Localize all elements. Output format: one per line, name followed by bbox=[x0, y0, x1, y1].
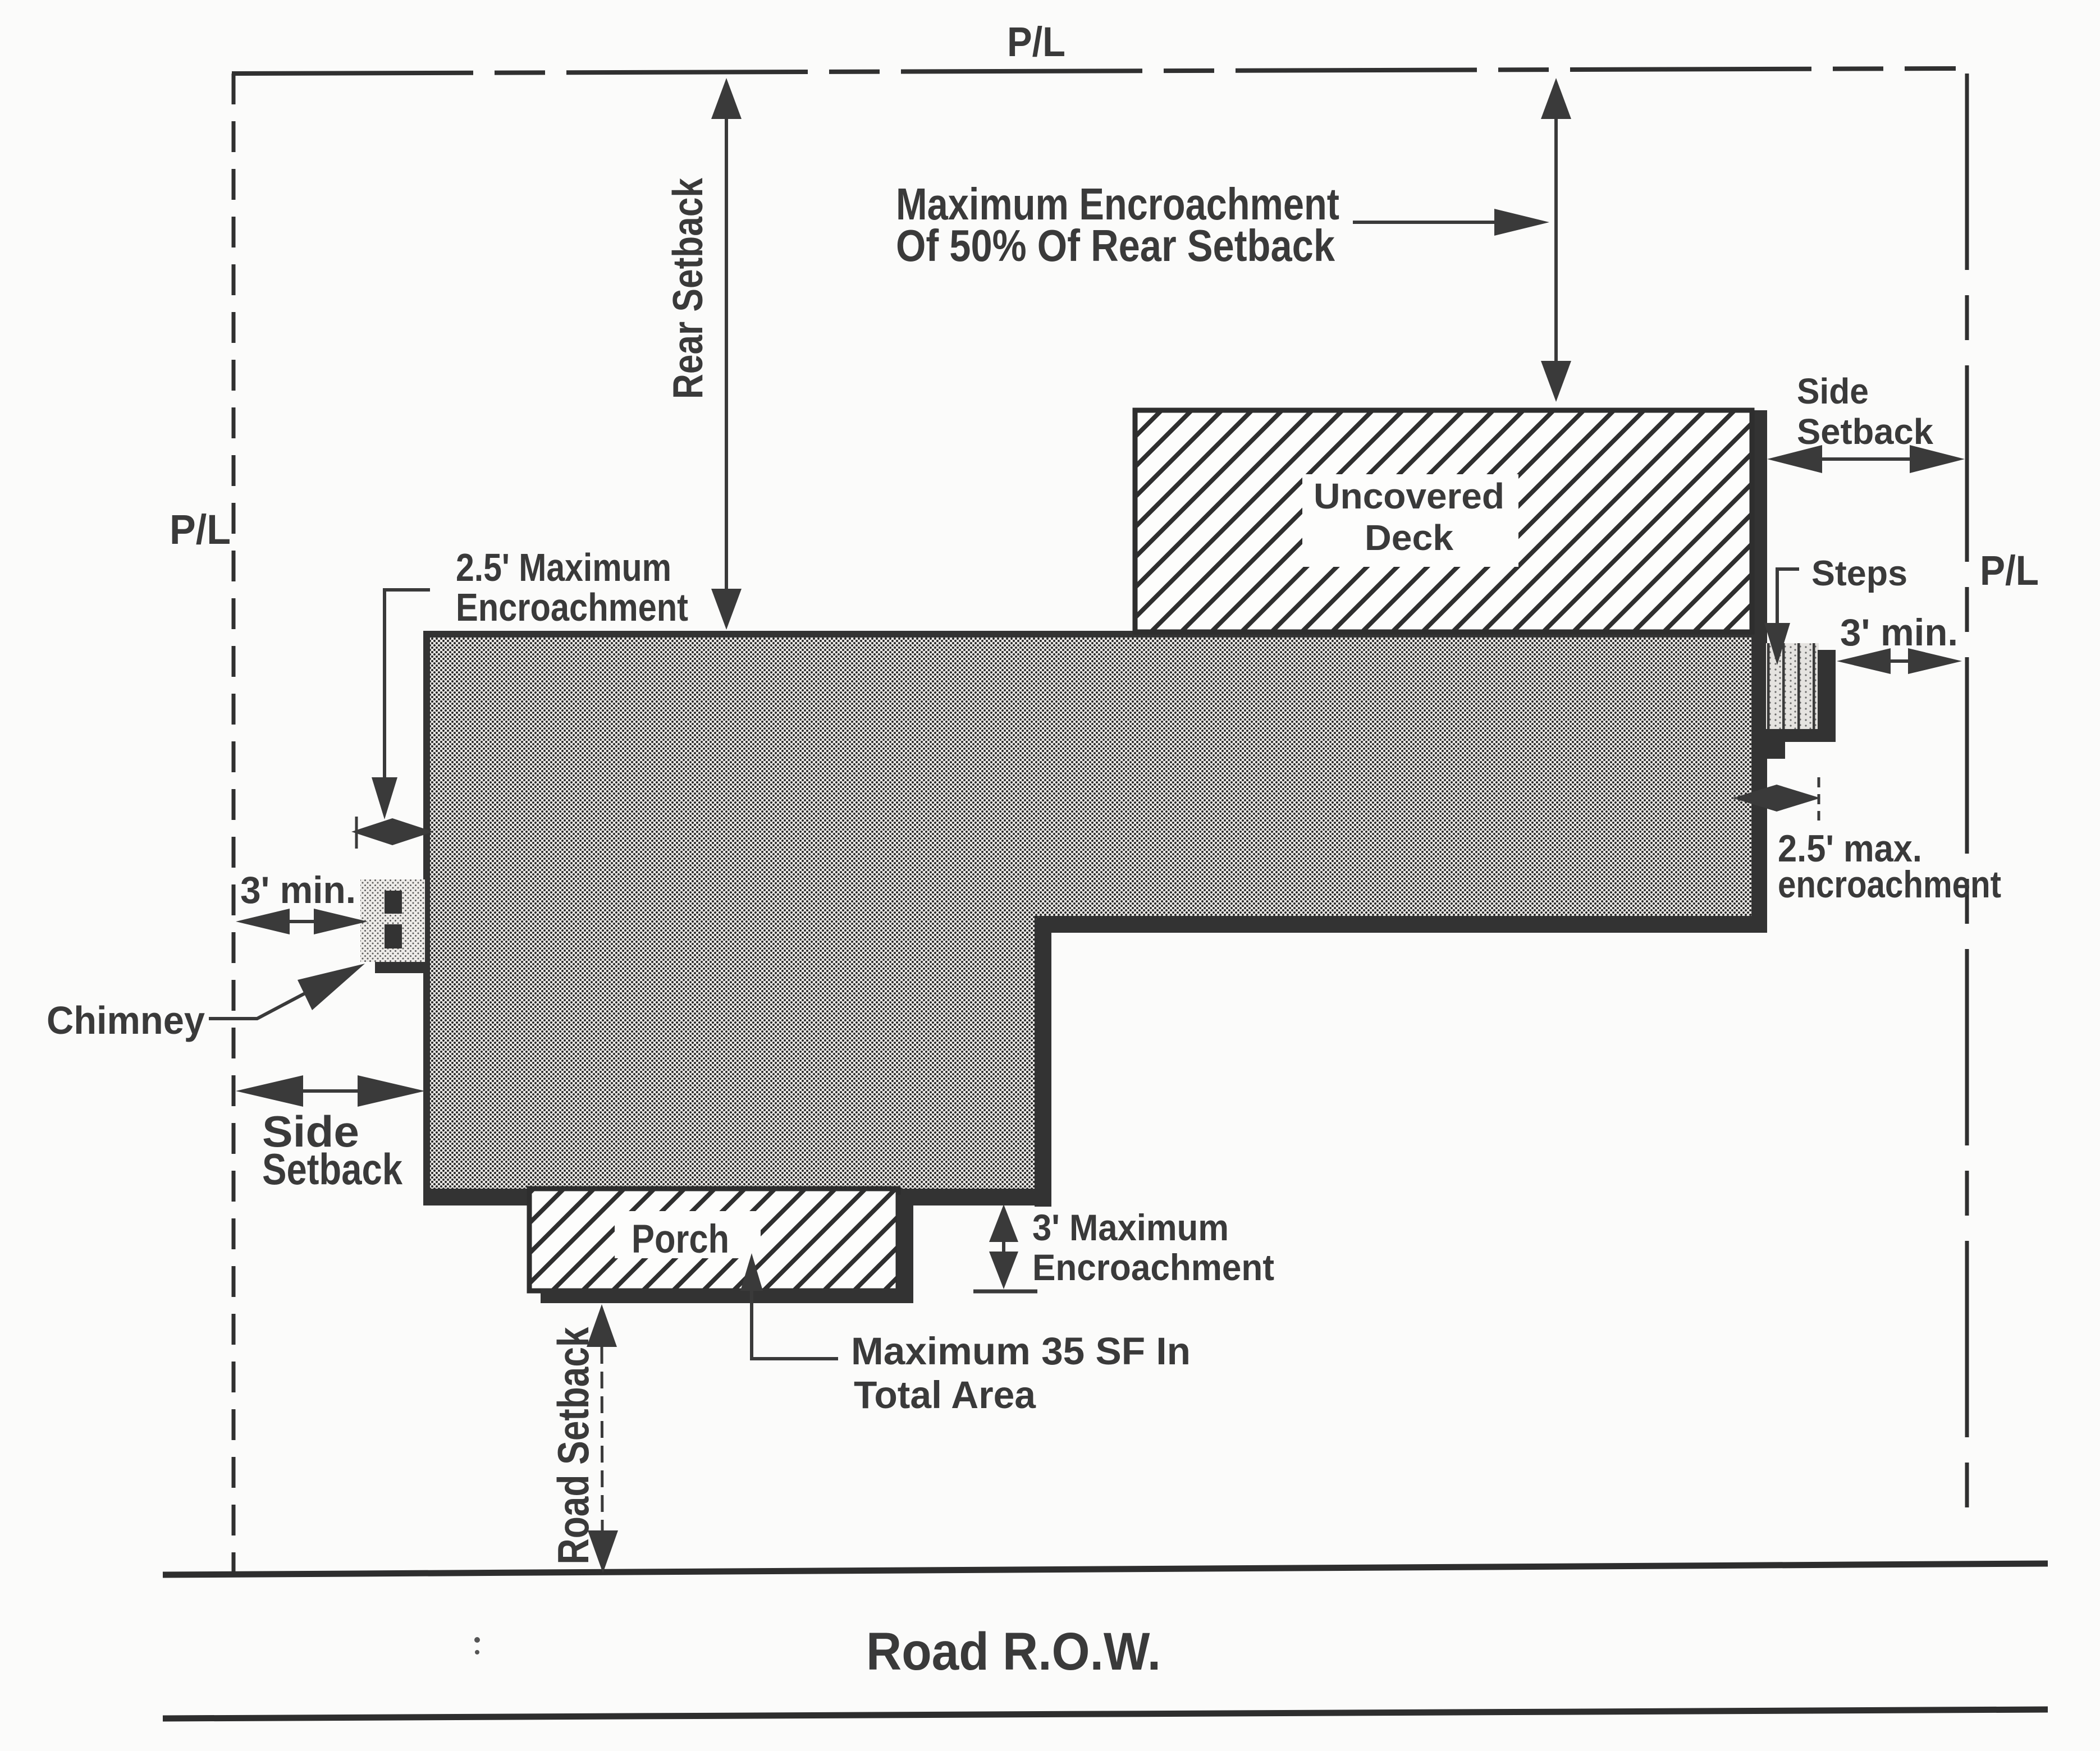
svg-text:P/L: P/L bbox=[1007, 19, 1065, 65]
svg-text:Setback: Setback bbox=[1797, 411, 1933, 452]
svg-text:Road Setback: Road Setback bbox=[548, 1327, 598, 1565]
svg-text:Maximum 35 SF In: Maximum 35 SF In bbox=[851, 1330, 1191, 1373]
svg-text:Setback: Setback bbox=[262, 1144, 403, 1194]
svg-text:Side: Side bbox=[1797, 371, 1869, 411]
svg-text:encroachment: encroachment bbox=[1778, 863, 2001, 906]
svg-text:Total Area: Total Area bbox=[854, 1373, 1036, 1417]
svg-text:Deck: Deck bbox=[1365, 517, 1453, 558]
svg-text:Encroachment: Encroachment bbox=[456, 585, 688, 629]
svg-text:Uncovered: Uncovered bbox=[1314, 476, 1504, 516]
svg-text:2.5' Maximum: 2.5' Maximum bbox=[456, 546, 671, 589]
svg-text:Road R.O.W.: Road R.O.W. bbox=[866, 1622, 1161, 1681]
svg-text:Encroachment: Encroachment bbox=[1032, 1246, 1274, 1288]
svg-text:3' min.: 3' min. bbox=[240, 869, 356, 911]
svg-text:P/L: P/L bbox=[1980, 547, 2039, 594]
svg-text:Of 50% Of Rear Setback: Of 50% Of Rear Setback bbox=[896, 221, 1335, 271]
svg-text:Rear Setback: Rear Setback bbox=[664, 178, 711, 399]
svg-text:Chimney: Chimney bbox=[47, 998, 205, 1042]
svg-text:3' Maximum: 3' Maximum bbox=[1032, 1207, 1229, 1248]
svg-text:3' min.: 3' min. bbox=[1840, 611, 1958, 654]
svg-text:Steps: Steps bbox=[1811, 554, 1907, 593]
svg-text:P/L: P/L bbox=[170, 506, 231, 553]
svg-text:Porch: Porch bbox=[632, 1217, 729, 1262]
